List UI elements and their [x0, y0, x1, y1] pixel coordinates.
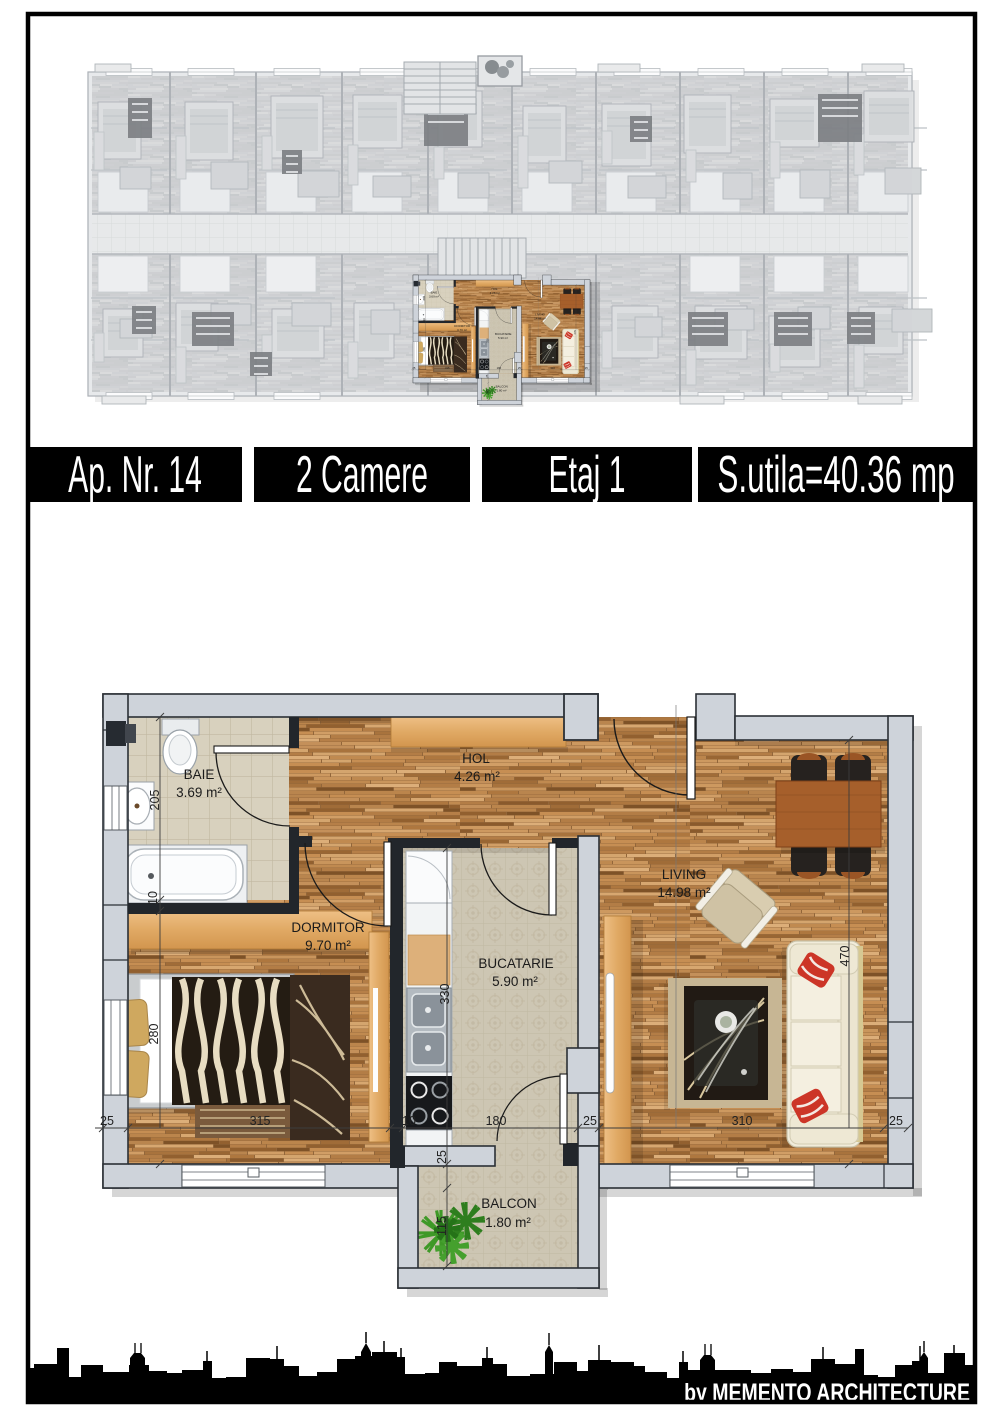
svg-text:10: 10: [402, 1114, 416, 1128]
svg-text:BALCON: BALCON: [481, 1196, 537, 1211]
svg-text:205: 205: [148, 790, 162, 811]
svg-text:115: 115: [435, 1216, 449, 1236]
svg-text:310: 310: [732, 1114, 753, 1128]
svg-text:LIVING: LIVING: [662, 867, 706, 882]
svg-text:BAIE: BAIE: [184, 767, 215, 782]
svg-text:S.utila=40.36 mp: S.utila=40.36 mp: [717, 446, 954, 504]
svg-text:HOL: HOL: [462, 751, 490, 766]
svg-text:25: 25: [889, 1114, 903, 1128]
svg-text:25: 25: [435, 1150, 449, 1164]
svg-text:Ap. Nr. 14: Ap. Nr. 14: [68, 446, 202, 503]
svg-text:280: 280: [147, 1024, 161, 1045]
svg-text:1.80 m²: 1.80 m²: [485, 1215, 531, 1230]
svg-text:9.70 m²: 9.70 m²: [305, 938, 351, 953]
svg-text:4.26 m²: 4.26 m²: [454, 769, 500, 784]
svg-text:470: 470: [838, 946, 852, 967]
svg-text:DORMITOR: DORMITOR: [291, 920, 364, 935]
svg-text:BUCATARIE: BUCATARIE: [478, 956, 553, 971]
svg-text:10: 10: [146, 891, 160, 905]
svg-text:25: 25: [100, 1114, 114, 1128]
svg-text:25: 25: [583, 1114, 597, 1128]
svg-text:5.90 m²: 5.90 m²: [492, 974, 538, 989]
svg-text:2 Camere: 2 Camere: [296, 446, 428, 503]
svg-text:180: 180: [486, 1114, 507, 1128]
svg-text:330: 330: [438, 984, 452, 1005]
svg-text:315: 315: [250, 1114, 271, 1128]
svg-text:Etaj 1: Etaj 1: [549, 446, 626, 503]
svg-text:14.98 m²: 14.98 m²: [657, 885, 711, 900]
svg-text:3.69 m²: 3.69 m²: [176, 785, 222, 800]
